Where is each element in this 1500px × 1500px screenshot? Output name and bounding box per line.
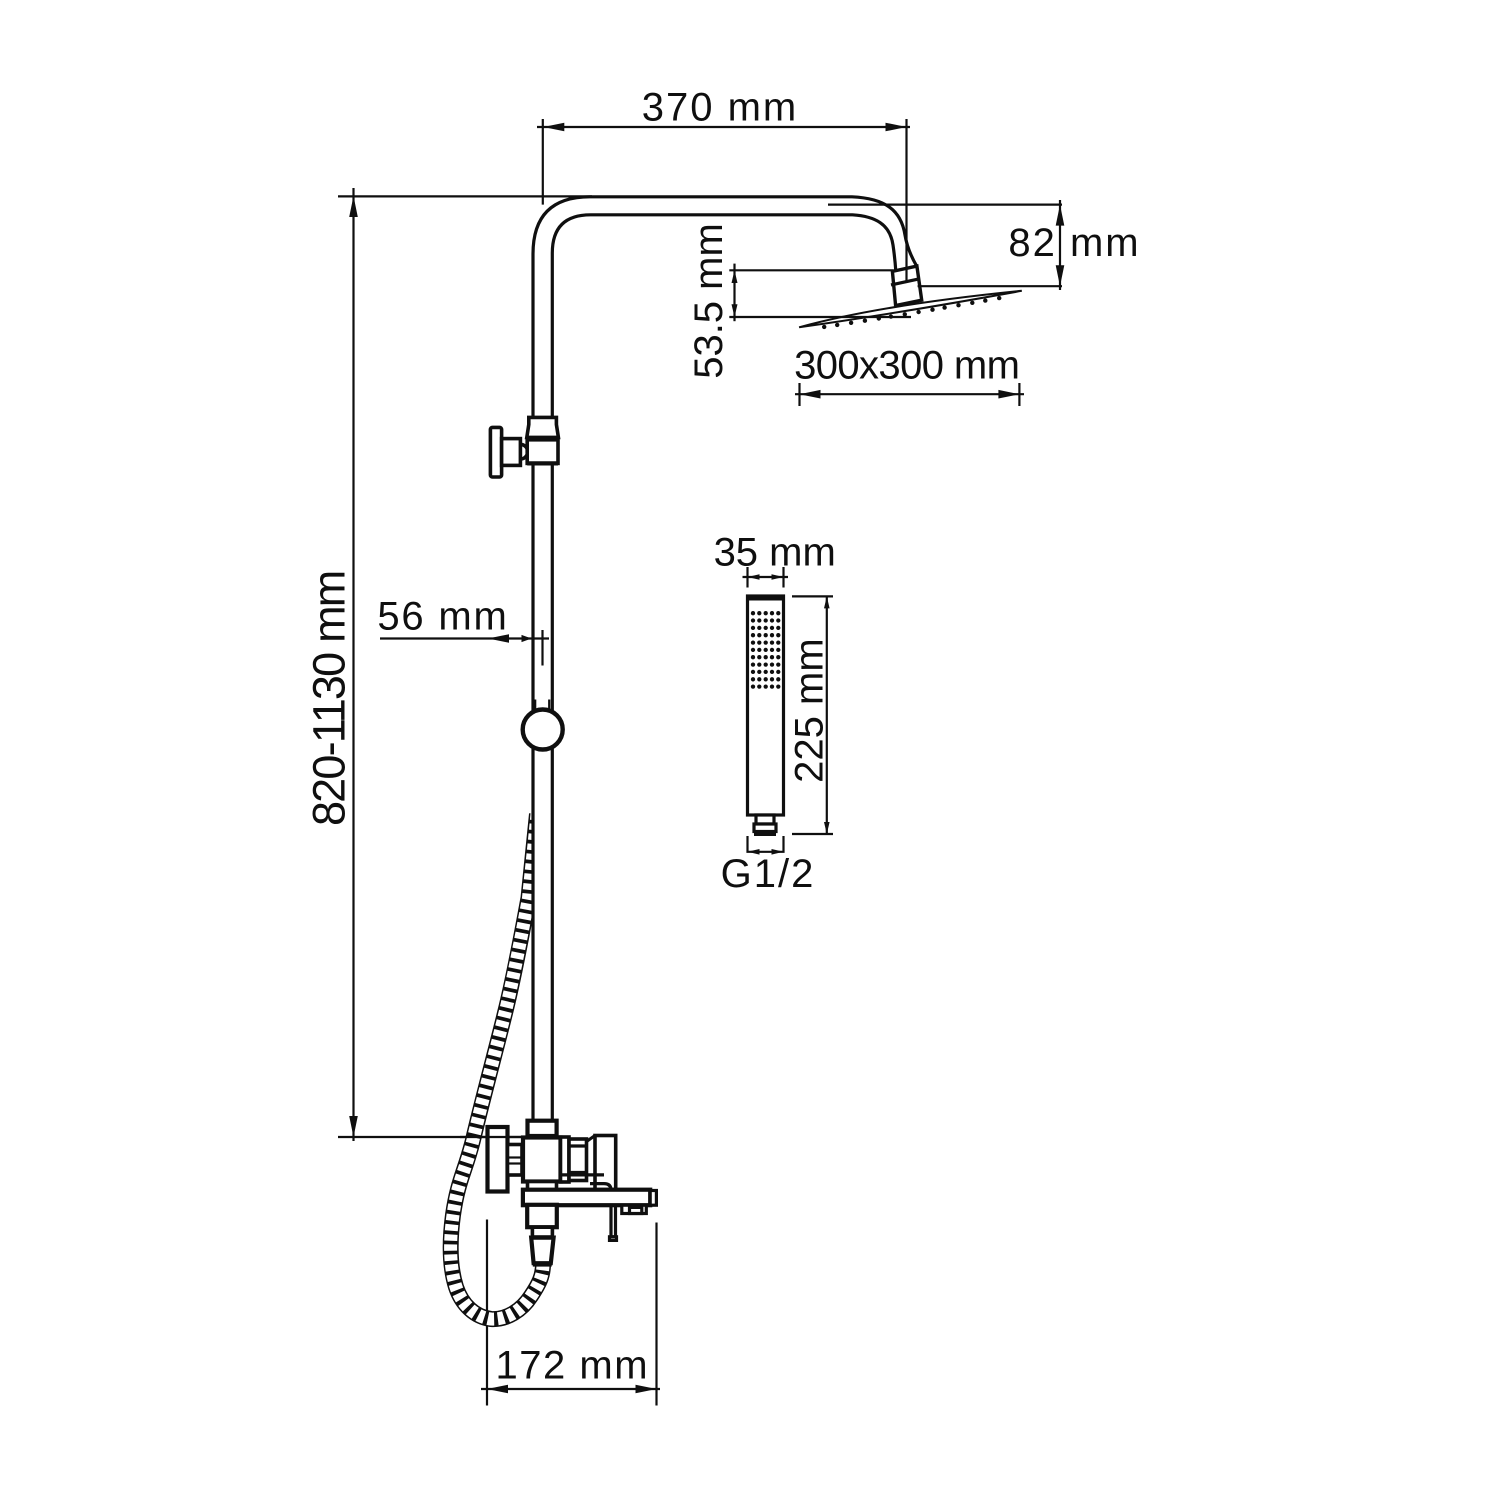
svg-text:56 mm: 56 mm — [377, 595, 508, 639]
svg-text:G1/2: G1/2 — [721, 852, 816, 896]
svg-text:172 mm: 172 mm — [496, 1344, 650, 1388]
svg-text:82 mm: 82 mm — [1008, 221, 1140, 265]
svg-text:53.5 mm: 53.5 mm — [687, 223, 731, 379]
svg-text:300x300 mm: 300x300 mm — [794, 344, 1019, 388]
svg-text:370 mm: 370 mm — [642, 86, 799, 130]
svg-text:820-1130 mm: 820-1130 mm — [304, 572, 355, 827]
svg-text:35 mm: 35 mm — [714, 531, 836, 575]
svg-text:225 mm: 225 mm — [788, 638, 832, 783]
